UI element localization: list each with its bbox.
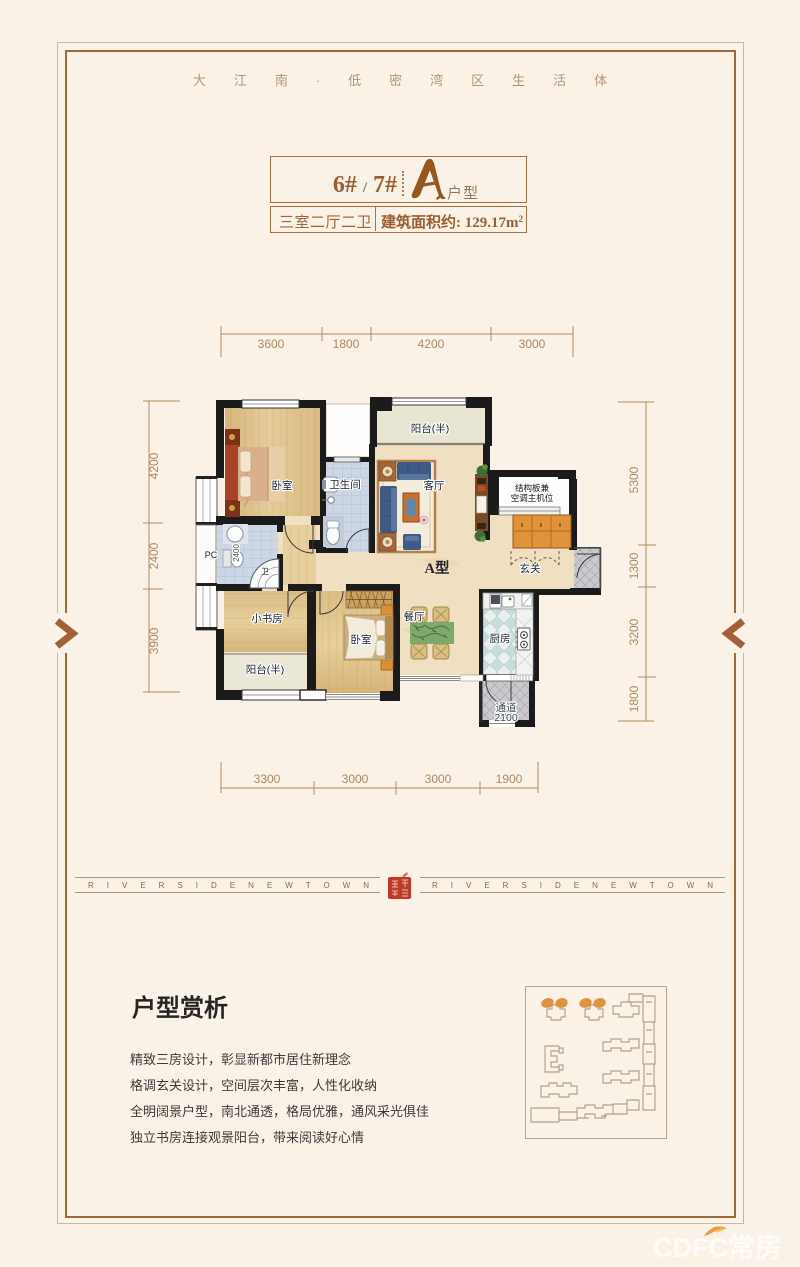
- svg-text:空调主机位: 空调主机位: [511, 493, 554, 503]
- svg-text:卧室: 卧室: [351, 633, 372, 646]
- svg-text:1300: 1300: [627, 552, 641, 579]
- svg-text:PC: PC: [205, 550, 218, 560]
- svg-text:A型: A型: [425, 559, 450, 577]
- svg-text:卧室: 卧室: [272, 479, 293, 492]
- svg-text:3000: 3000: [519, 337, 546, 351]
- svg-text:3900: 3900: [147, 627, 161, 654]
- svg-text:1900: 1900: [496, 772, 523, 786]
- svg-text:4200: 4200: [418, 337, 445, 351]
- svg-text:3300: 3300: [254, 772, 281, 786]
- svg-text:3200: 3200: [627, 618, 641, 645]
- svg-text:2100: 2100: [494, 712, 518, 724]
- svg-text:结构板兼: 结构板兼: [515, 483, 550, 493]
- svg-text:2400: 2400: [147, 542, 161, 569]
- svg-text:厨房: 厨房: [490, 632, 511, 645]
- svg-text:小书房: 小书房: [251, 612, 283, 625]
- svg-text:3000: 3000: [342, 772, 369, 786]
- svg-text:2400: 2400: [232, 544, 241, 562]
- svg-text:阳台(半): 阳台(半): [246, 663, 285, 676]
- svg-text:4200: 4200: [147, 452, 161, 479]
- svg-text:3000: 3000: [425, 772, 452, 786]
- svg-text:客厅: 客厅: [424, 479, 445, 492]
- svg-text:卫: 卫: [261, 567, 269, 576]
- svg-text:卫生间: 卫生间: [329, 478, 361, 491]
- svg-text:3600: 3600: [258, 337, 285, 351]
- svg-text:1800: 1800: [627, 685, 641, 712]
- svg-text:5300: 5300: [627, 466, 641, 493]
- svg-text:餐厅: 餐厅: [404, 610, 425, 623]
- svg-text:玄关: 玄关: [520, 562, 541, 575]
- svg-text:阳台(半): 阳台(半): [411, 422, 450, 435]
- svg-text:1800: 1800: [333, 337, 360, 351]
